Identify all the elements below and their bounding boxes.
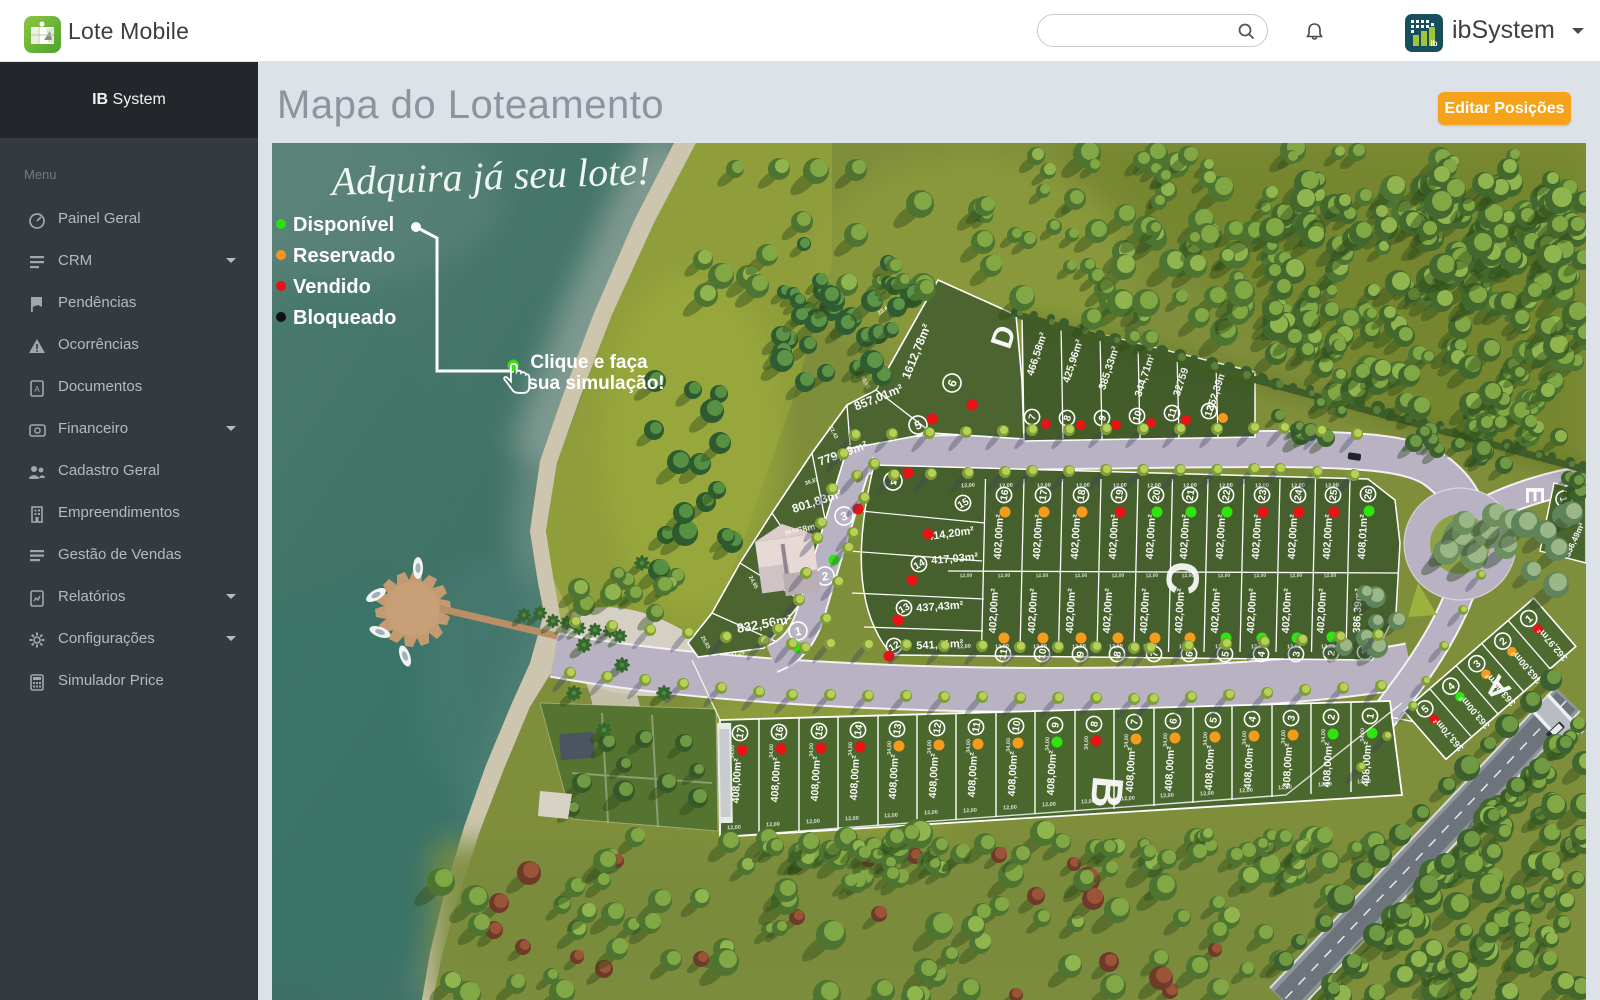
svg-text:402,00m²: 402,00m² bbox=[1245, 588, 1259, 634]
svg-text:Clique e faça: Clique e faça bbox=[530, 352, 648, 373]
svg-text:12,00: 12,00 bbox=[766, 822, 780, 829]
svg-text:402,00m²: 402,00m² bbox=[1173, 588, 1187, 634]
svg-text:34,00: 34,00 bbox=[1163, 733, 1169, 747]
svg-text:12,00: 12,00 bbox=[1109, 644, 1123, 651]
svg-text:402,00m²: 402,00m² bbox=[1321, 514, 1335, 560]
svg-text:12,00: 12,00 bbox=[884, 813, 898, 820]
svg-text:12,00: 12,00 bbox=[1357, 779, 1371, 786]
svg-text:Vendido: Vendido bbox=[293, 276, 371, 298]
svg-text:12,00: 12,00 bbox=[1037, 483, 1051, 490]
svg-text:408,01m²: 408,01m² bbox=[1356, 514, 1370, 560]
svg-text:12,00: 12,00 bbox=[998, 573, 1011, 580]
svg-text:12,00: 12,00 bbox=[1200, 791, 1214, 798]
svg-text:402,00m²: 402,00m² bbox=[1286, 514, 1300, 560]
svg-text:12,00: 12,00 bbox=[1278, 785, 1292, 792]
svg-text:12,00: 12,00 bbox=[1239, 788, 1253, 795]
svg-text:34,00: 34,00 bbox=[887, 741, 893, 755]
svg-text:12,00: 12,00 bbox=[727, 825, 741, 832]
svg-text:402,00m²: 402,00m² bbox=[1064, 588, 1078, 634]
svg-text:12,00: 12,00 bbox=[1033, 644, 1047, 651]
svg-text:12,00: 12,00 bbox=[1218, 573, 1231, 580]
svg-text:12,00: 12,00 bbox=[995, 644, 1009, 651]
svg-text:34,00: 34,00 bbox=[1124, 734, 1130, 748]
svg-text:34,00: 34,00 bbox=[1203, 732, 1209, 746]
svg-text:12,00: 12,00 bbox=[1182, 573, 1195, 580]
svg-text:E: E bbox=[1520, 486, 1550, 503]
svg-text:12,00: 12,00 bbox=[1147, 483, 1161, 490]
svg-text:12,00: 12,00 bbox=[924, 810, 938, 817]
svg-text:402,00m²: 402,00m² bbox=[1026, 588, 1040, 634]
svg-text:12,00: 12,00 bbox=[1325, 483, 1339, 490]
svg-text:402,00m²: 402,00m² bbox=[992, 514, 1006, 560]
svg-text:12,00: 12,00 bbox=[1146, 573, 1159, 580]
svg-text:408,00m²: 408,00m² bbox=[1203, 745, 1217, 791]
svg-text:402,00m²: 402,00m² bbox=[1209, 588, 1223, 634]
svg-text:sua simulação!: sua simulação! bbox=[527, 373, 664, 394]
svg-text:12,00: 12,00 bbox=[1254, 573, 1267, 580]
svg-text:402,00m²: 402,00m² bbox=[1280, 588, 1294, 634]
svg-text:12,00: 12,00 bbox=[1219, 483, 1233, 490]
svg-text:Reservado: Reservado bbox=[293, 245, 395, 267]
svg-text:408,00m²: 408,00m² bbox=[1321, 742, 1335, 788]
svg-text:12,00: 12,00 bbox=[1290, 573, 1303, 580]
svg-text:402,00m²: 402,00m² bbox=[1214, 514, 1228, 560]
svg-text:12,00: 12,00 bbox=[963, 808, 977, 815]
svg-text:34,00: 34,00 bbox=[769, 744, 775, 758]
svg-text:12,00: 12,00 bbox=[845, 816, 859, 823]
svg-text:34,00: 34,00 bbox=[809, 743, 815, 757]
svg-text:12,00: 12,00 bbox=[1121, 796, 1135, 803]
svg-text:402,00m²: 402,00m² bbox=[1315, 588, 1329, 634]
svg-text:34,00: 34,00 bbox=[966, 739, 972, 753]
svg-text:408,00m²: 408,00m² bbox=[848, 755, 862, 801]
svg-text:402,00m²: 402,00m² bbox=[987, 588, 1001, 634]
svg-text:12,00: 12,00 bbox=[1036, 573, 1049, 580]
svg-text:12,00: 12,00 bbox=[1113, 483, 1127, 490]
svg-text:34,00: 34,00 bbox=[1281, 730, 1287, 744]
svg-text:402,00m²: 402,00m² bbox=[1250, 514, 1264, 560]
svg-text:12,00: 12,00 bbox=[1324, 573, 1337, 580]
svg-text:34,00: 34,00 bbox=[927, 740, 933, 754]
svg-text:12,00: 12,00 bbox=[806, 819, 820, 826]
svg-text:402,00m²: 402,00m² bbox=[1144, 514, 1158, 560]
svg-text:12,00: 12,00 bbox=[960, 573, 973, 580]
svg-text:408,00m²: 408,00m² bbox=[1242, 744, 1256, 790]
svg-text:34,00: 34,00 bbox=[1321, 729, 1327, 743]
svg-text:34,00: 34,00 bbox=[1006, 738, 1012, 752]
svg-text:12,00: 12,00 bbox=[1042, 802, 1056, 809]
svg-text:12,00: 12,00 bbox=[1076, 483, 1090, 490]
svg-text:Bloqueado: Bloqueado bbox=[293, 307, 396, 329]
svg-text:34,00: 34,00 bbox=[1045, 737, 1051, 751]
svg-text:402,00m²: 402,00m² bbox=[1107, 514, 1121, 560]
svg-text:402,00m²: 402,00m² bbox=[1031, 514, 1045, 560]
svg-text:A: A bbox=[34, 385, 40, 394]
svg-text:402,00m²: 402,00m² bbox=[1101, 588, 1115, 634]
svg-text:Disponível: Disponível bbox=[293, 214, 394, 236]
svg-text:12,00: 12,00 bbox=[999, 483, 1013, 490]
svg-text:408,00m²: 408,00m² bbox=[1006, 751, 1020, 797]
svg-text:12,00: 12,00 bbox=[1003, 805, 1017, 812]
svg-text:408,00m²: 408,00m² bbox=[1045, 750, 1059, 796]
svg-text:408,00m²: 408,00m² bbox=[809, 756, 823, 802]
svg-text:408,00m²: 408,00m² bbox=[927, 753, 941, 799]
svg-text:12,00: 12,00 bbox=[1160, 793, 1174, 800]
svg-text:402,00m²: 402,00m² bbox=[1138, 588, 1152, 634]
svg-text:34,00: 34,00 bbox=[848, 742, 854, 756]
svg-text:408,00m²: 408,00m² bbox=[966, 752, 980, 798]
svg-text:12,00: 12,00 bbox=[1318, 782, 1332, 789]
svg-text:34,00: 34,00 bbox=[1242, 731, 1248, 745]
svg-text:408,00m²: 408,00m² bbox=[1281, 743, 1295, 789]
svg-text:12,00: 12,00 bbox=[1112, 573, 1125, 580]
svg-text:408,00m²: 408,00m² bbox=[769, 757, 783, 803]
svg-text:12,00: 12,00 bbox=[1075, 573, 1088, 580]
svg-text:12,00: 12,00 bbox=[1183, 483, 1197, 490]
svg-text:402,00m²: 402,00m² bbox=[1069, 514, 1083, 560]
svg-text:12,00: 12,00 bbox=[961, 483, 975, 490]
svg-text:408,00m²: 408,00m² bbox=[1163, 746, 1177, 792]
svg-text:402,00m²: 402,00m² bbox=[1178, 514, 1192, 560]
svg-text:ib: ib bbox=[1430, 39, 1437, 48]
svg-text:408,00m²: 408,00m² bbox=[887, 754, 901, 800]
svg-text:12,00: 12,00 bbox=[1081, 799, 1095, 806]
svg-text:12,00: 12,00 bbox=[1072, 644, 1086, 651]
svg-text:34,00: 34,00 bbox=[1084, 736, 1090, 750]
